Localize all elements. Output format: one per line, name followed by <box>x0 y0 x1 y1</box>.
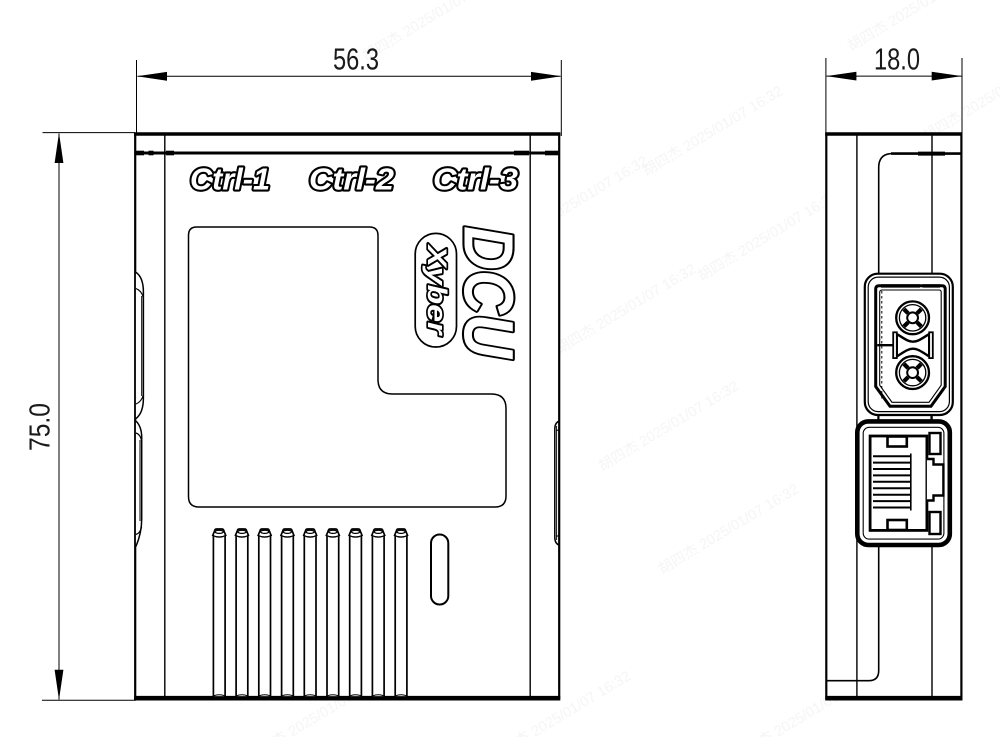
svg-text:56.3: 56.3 <box>333 41 379 76</box>
svg-text:75.0: 75.0 <box>25 403 57 451</box>
svg-text:Ctrl-1: Ctrl-1 <box>190 162 270 197</box>
svg-text:Xyber: Xyber <box>422 243 452 336</box>
svg-text:Ctrl-3: Ctrl-3 <box>433 162 518 197</box>
svg-text:DCU: DCU <box>450 226 528 359</box>
svg-text:18.0: 18.0 <box>874 41 920 76</box>
svg-text:Ctrl-2: Ctrl-2 <box>309 162 394 197</box>
